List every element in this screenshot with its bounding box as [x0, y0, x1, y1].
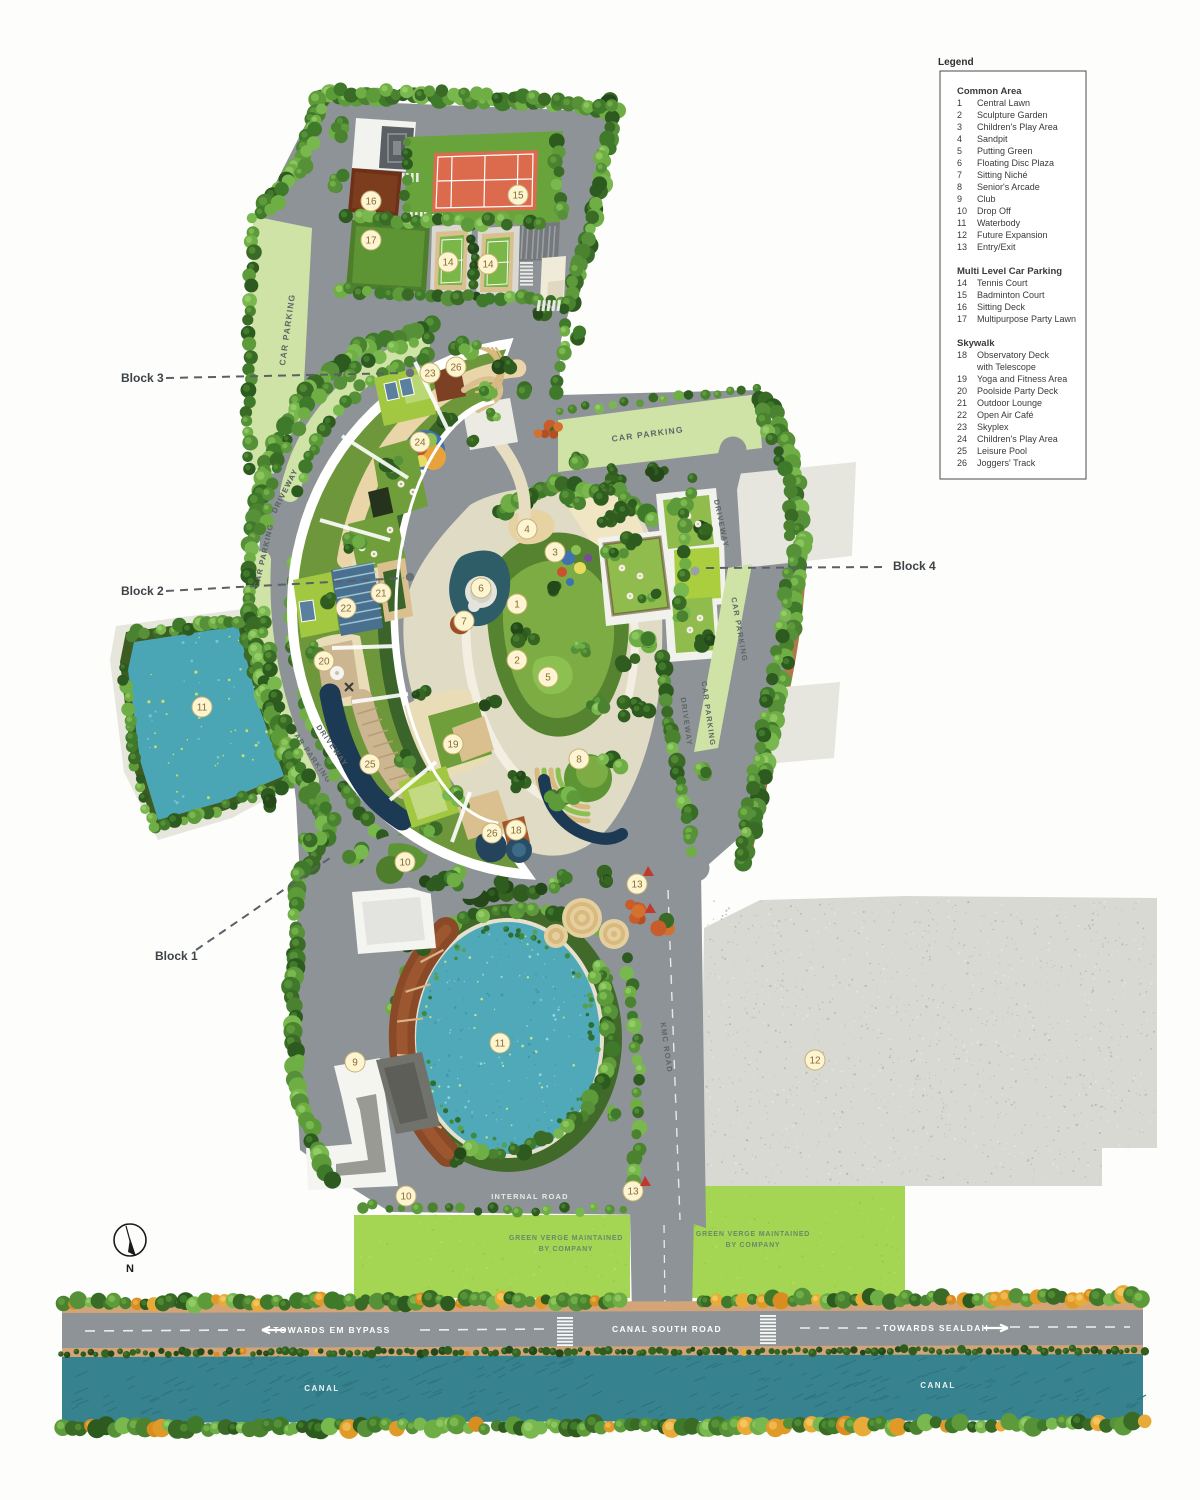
svg-text:18: 18 — [957, 350, 967, 360]
svg-text:10: 10 — [400, 1191, 412, 1202]
svg-text:9: 9 — [352, 1057, 358, 1068]
svg-text:Floating Disc Plaza: Floating Disc Plaza — [977, 158, 1054, 168]
svg-text:CANAL SOUTH ROAD: CANAL SOUTH ROAD — [612, 1324, 722, 1334]
svg-text:Multi Level Car Parking: Multi Level Car Parking — [957, 266, 1062, 277]
svg-text:BY COMPANY: BY COMPANY — [539, 1246, 594, 1253]
svg-text:23: 23 — [424, 368, 436, 379]
svg-text:N: N — [126, 1263, 134, 1275]
svg-text:Joggers' Track: Joggers' Track — [977, 458, 1036, 468]
svg-text:21: 21 — [375, 588, 387, 599]
svg-text:GREEN VERGE MAINTAINED: GREEN VERGE MAINTAINED — [696, 1231, 810, 1238]
svg-text:Observatory Deck: Observatory Deck — [977, 350, 1050, 360]
svg-text:22: 22 — [340, 603, 352, 614]
svg-text:TOWARDS SEALDAH: TOWARDS SEALDAH — [883, 1323, 989, 1333]
svg-text:CANAL: CANAL — [920, 1381, 956, 1390]
svg-text:10: 10 — [399, 857, 411, 868]
svg-text:19: 19 — [447, 739, 459, 750]
svg-text:Block 1: Block 1 — [155, 949, 198, 963]
svg-text:Block 4: Block 4 — [893, 559, 936, 573]
svg-text:Sitting Niché: Sitting Niché — [977, 170, 1028, 180]
svg-text:Drop Off: Drop Off — [977, 206, 1011, 216]
svg-text:Poolside Party Deck: Poolside Party Deck — [977, 386, 1059, 396]
svg-text:Central Lawn: Central Lawn — [977, 98, 1030, 108]
svg-text:26: 26 — [486, 828, 498, 839]
svg-text:10: 10 — [957, 206, 967, 216]
svg-text:26: 26 — [957, 458, 967, 468]
svg-text:GREEN VERGE MAINTAINED: GREEN VERGE MAINTAINED — [509, 1235, 623, 1242]
svg-text:17: 17 — [365, 235, 377, 246]
svg-text:Sculpture Garden: Sculpture Garden — [977, 110, 1048, 120]
svg-text:Waterbody: Waterbody — [977, 218, 1021, 228]
svg-text:BY COMPANY: BY COMPANY — [726, 1242, 781, 1249]
svg-text:CANAL: CANAL — [304, 1384, 340, 1393]
svg-text:Putting Green: Putting Green — [977, 146, 1033, 156]
svg-text:Open Air Café: Open Air Café — [977, 410, 1034, 420]
svg-text:14: 14 — [442, 257, 454, 268]
svg-text:Legend: Legend — [938, 57, 974, 68]
svg-text:16: 16 — [957, 302, 967, 312]
svg-text:11: 11 — [495, 1038, 506, 1049]
svg-text:Common Area: Common Area — [957, 86, 1022, 97]
svg-text:13: 13 — [631, 879, 643, 890]
svg-text:22: 22 — [957, 410, 967, 420]
svg-text:Sitting Deck: Sitting Deck — [977, 302, 1026, 312]
svg-text:7: 7 — [957, 170, 962, 180]
svg-text:Block 3: Block 3 — [121, 371, 164, 385]
svg-text:12: 12 — [957, 230, 967, 240]
svg-text:20: 20 — [957, 386, 967, 396]
svg-text:21: 21 — [957, 398, 967, 408]
svg-text:14: 14 — [957, 278, 967, 288]
svg-text:5: 5 — [545, 672, 551, 683]
svg-text:24: 24 — [414, 437, 426, 448]
svg-text:Yoga and Fitness Area: Yoga and Fitness Area — [977, 374, 1067, 384]
svg-text:11: 11 — [957, 218, 966, 228]
svg-text:15: 15 — [512, 190, 524, 201]
svg-text:9: 9 — [957, 194, 962, 204]
svg-text:2: 2 — [514, 655, 520, 666]
svg-text:7: 7 — [461, 616, 467, 627]
svg-text:INTERNAL ROAD: INTERNAL ROAD — [491, 1192, 569, 1201]
svg-text:Leisure Pool: Leisure Pool — [977, 446, 1027, 456]
svg-text:16: 16 — [365, 196, 377, 207]
svg-text:8: 8 — [957, 182, 962, 192]
svg-text:Multipurpose Party Lawn: Multipurpose Party Lawn — [977, 314, 1076, 324]
svg-text:18: 18 — [510, 825, 522, 836]
svg-text:Children's Play Area: Children's Play Area — [977, 122, 1058, 132]
svg-text:15: 15 — [957, 290, 967, 300]
svg-text:Block 2: Block 2 — [121, 584, 164, 598]
svg-text:Sandpit: Sandpit — [977, 134, 1008, 144]
svg-text:19: 19 — [957, 374, 967, 384]
svg-text:13: 13 — [957, 242, 967, 252]
svg-text:24: 24 — [957, 434, 967, 444]
svg-text:4: 4 — [957, 134, 962, 144]
svg-text:12: 12 — [809, 1055, 821, 1066]
svg-text:2: 2 — [957, 110, 962, 120]
svg-text:11: 11 — [197, 702, 208, 713]
svg-text:26: 26 — [450, 362, 462, 373]
svg-text:6: 6 — [957, 158, 962, 168]
svg-text:Senior's Arcade: Senior's Arcade — [977, 182, 1040, 192]
svg-text:Future Expansion: Future Expansion — [977, 230, 1048, 240]
svg-text:13: 13 — [627, 1186, 639, 1197]
svg-text:Entry/Exit: Entry/Exit — [977, 242, 1016, 252]
svg-text:Children's Play Area: Children's Play Area — [977, 434, 1058, 444]
svg-text:Badminton Court: Badminton Court — [977, 290, 1045, 300]
svg-text:TOWARDS EM BYPASS: TOWARDS EM BYPASS — [273, 1325, 390, 1335]
svg-text:25: 25 — [364, 759, 376, 770]
svg-text:Club: Club — [977, 194, 996, 204]
svg-text:Tennis Court: Tennis Court — [977, 278, 1028, 288]
svg-text:3: 3 — [957, 122, 962, 132]
svg-text:4: 4 — [524, 524, 530, 535]
svg-text:3: 3 — [552, 547, 558, 558]
svg-text:20: 20 — [318, 656, 330, 667]
svg-text:1: 1 — [957, 98, 962, 108]
svg-text:Skywalk: Skywalk — [957, 338, 995, 349]
svg-text:Outdoor Lounge: Outdoor Lounge — [977, 398, 1042, 408]
svg-text:17: 17 — [957, 314, 967, 324]
svg-text:1: 1 — [514, 599, 520, 610]
svg-text:23: 23 — [957, 422, 967, 432]
svg-text:6: 6 — [478, 583, 484, 594]
svg-text:8: 8 — [576, 754, 582, 765]
svg-text:5: 5 — [957, 146, 962, 156]
svg-text:with Telescope: with Telescope — [976, 362, 1036, 372]
svg-text:14: 14 — [482, 259, 494, 270]
svg-text:Skyplex: Skyplex — [977, 422, 1009, 432]
svg-text:25: 25 — [957, 446, 967, 456]
